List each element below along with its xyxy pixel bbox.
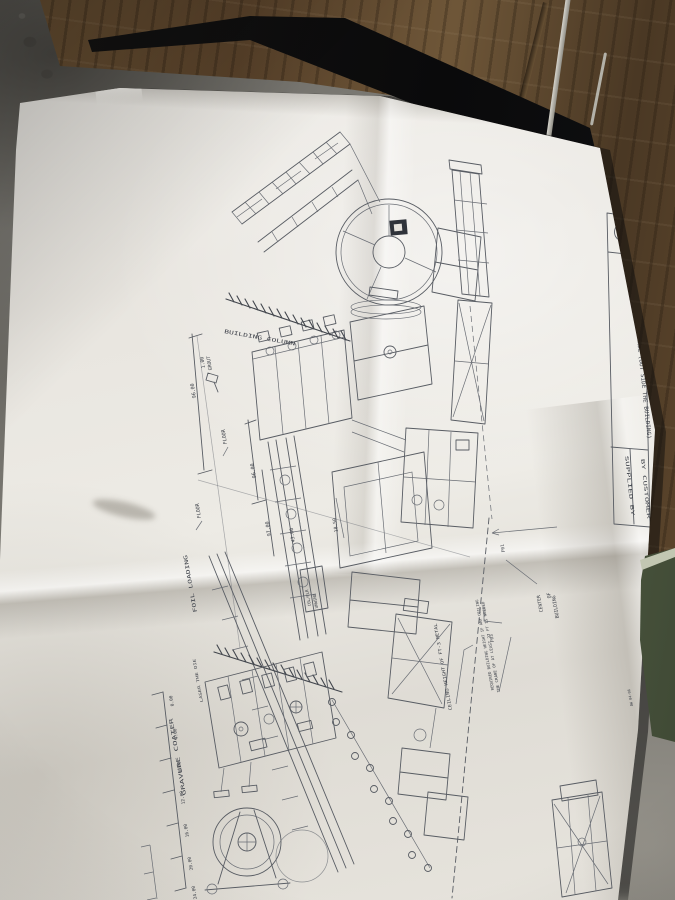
label-center-1: CENTER [536, 594, 545, 612]
coater-cluster [205, 652, 336, 798]
plan-right-tower [388, 598, 468, 840]
dim-43: 43.00 [289, 527, 297, 542]
label-laser-die: LASER THE DIE [191, 657, 204, 702]
label-floor-upper: FLOOR [221, 428, 229, 445]
label-floor-lower: FLOOR [195, 502, 203, 519]
raising-rails [209, 552, 354, 872]
edge-mark: AW 04-06 [627, 689, 634, 707]
dim-96-mid: 96.00 [250, 463, 258, 479]
building-centerline [452, 518, 489, 898]
label-foil-loading: FOIL LOADING [183, 555, 199, 613]
machine-tower [401, 160, 492, 528]
label-unwind-2: UNWIND [311, 593, 319, 609]
unwind-shaft [268, 436, 326, 640]
dim-97: 97.00 [265, 521, 273, 537]
machine-frames [252, 306, 432, 452]
label-grout-value: 1.00 [199, 356, 207, 368]
scale-tick-label: 24.00 [191, 885, 199, 900]
scale-tick-label: 20.00 [187, 856, 195, 871]
scale-tick-label: 16.00 [183, 823, 191, 838]
mid-box [348, 572, 420, 634]
roof-line [214, 645, 342, 692]
tag-f01: F01 [500, 543, 507, 552]
photo-scene: (00 400) 50 CHILLER PANEL (OUT SIDE THE … [0, 0, 675, 900]
label-center-3: BUILDING [551, 595, 561, 619]
elevation-drawing: BUILDING COLUMN 96.00 1.00 GROUT FLOOR F… [189, 132, 492, 648]
plan-drawing: 0.00 4.00 8.00 12.00 16.00 20.00 24.00 F… [141, 518, 634, 900]
titleblock-supplied-by: SUPPLIED BY [623, 456, 635, 516]
unwind-roll [205, 808, 328, 894]
braced-fragment [552, 780, 612, 897]
scale-tick-label: 0.00 [168, 695, 176, 707]
label-building-column: BUILDING COLUMN [224, 329, 296, 347]
festoon-rollers [329, 699, 432, 872]
